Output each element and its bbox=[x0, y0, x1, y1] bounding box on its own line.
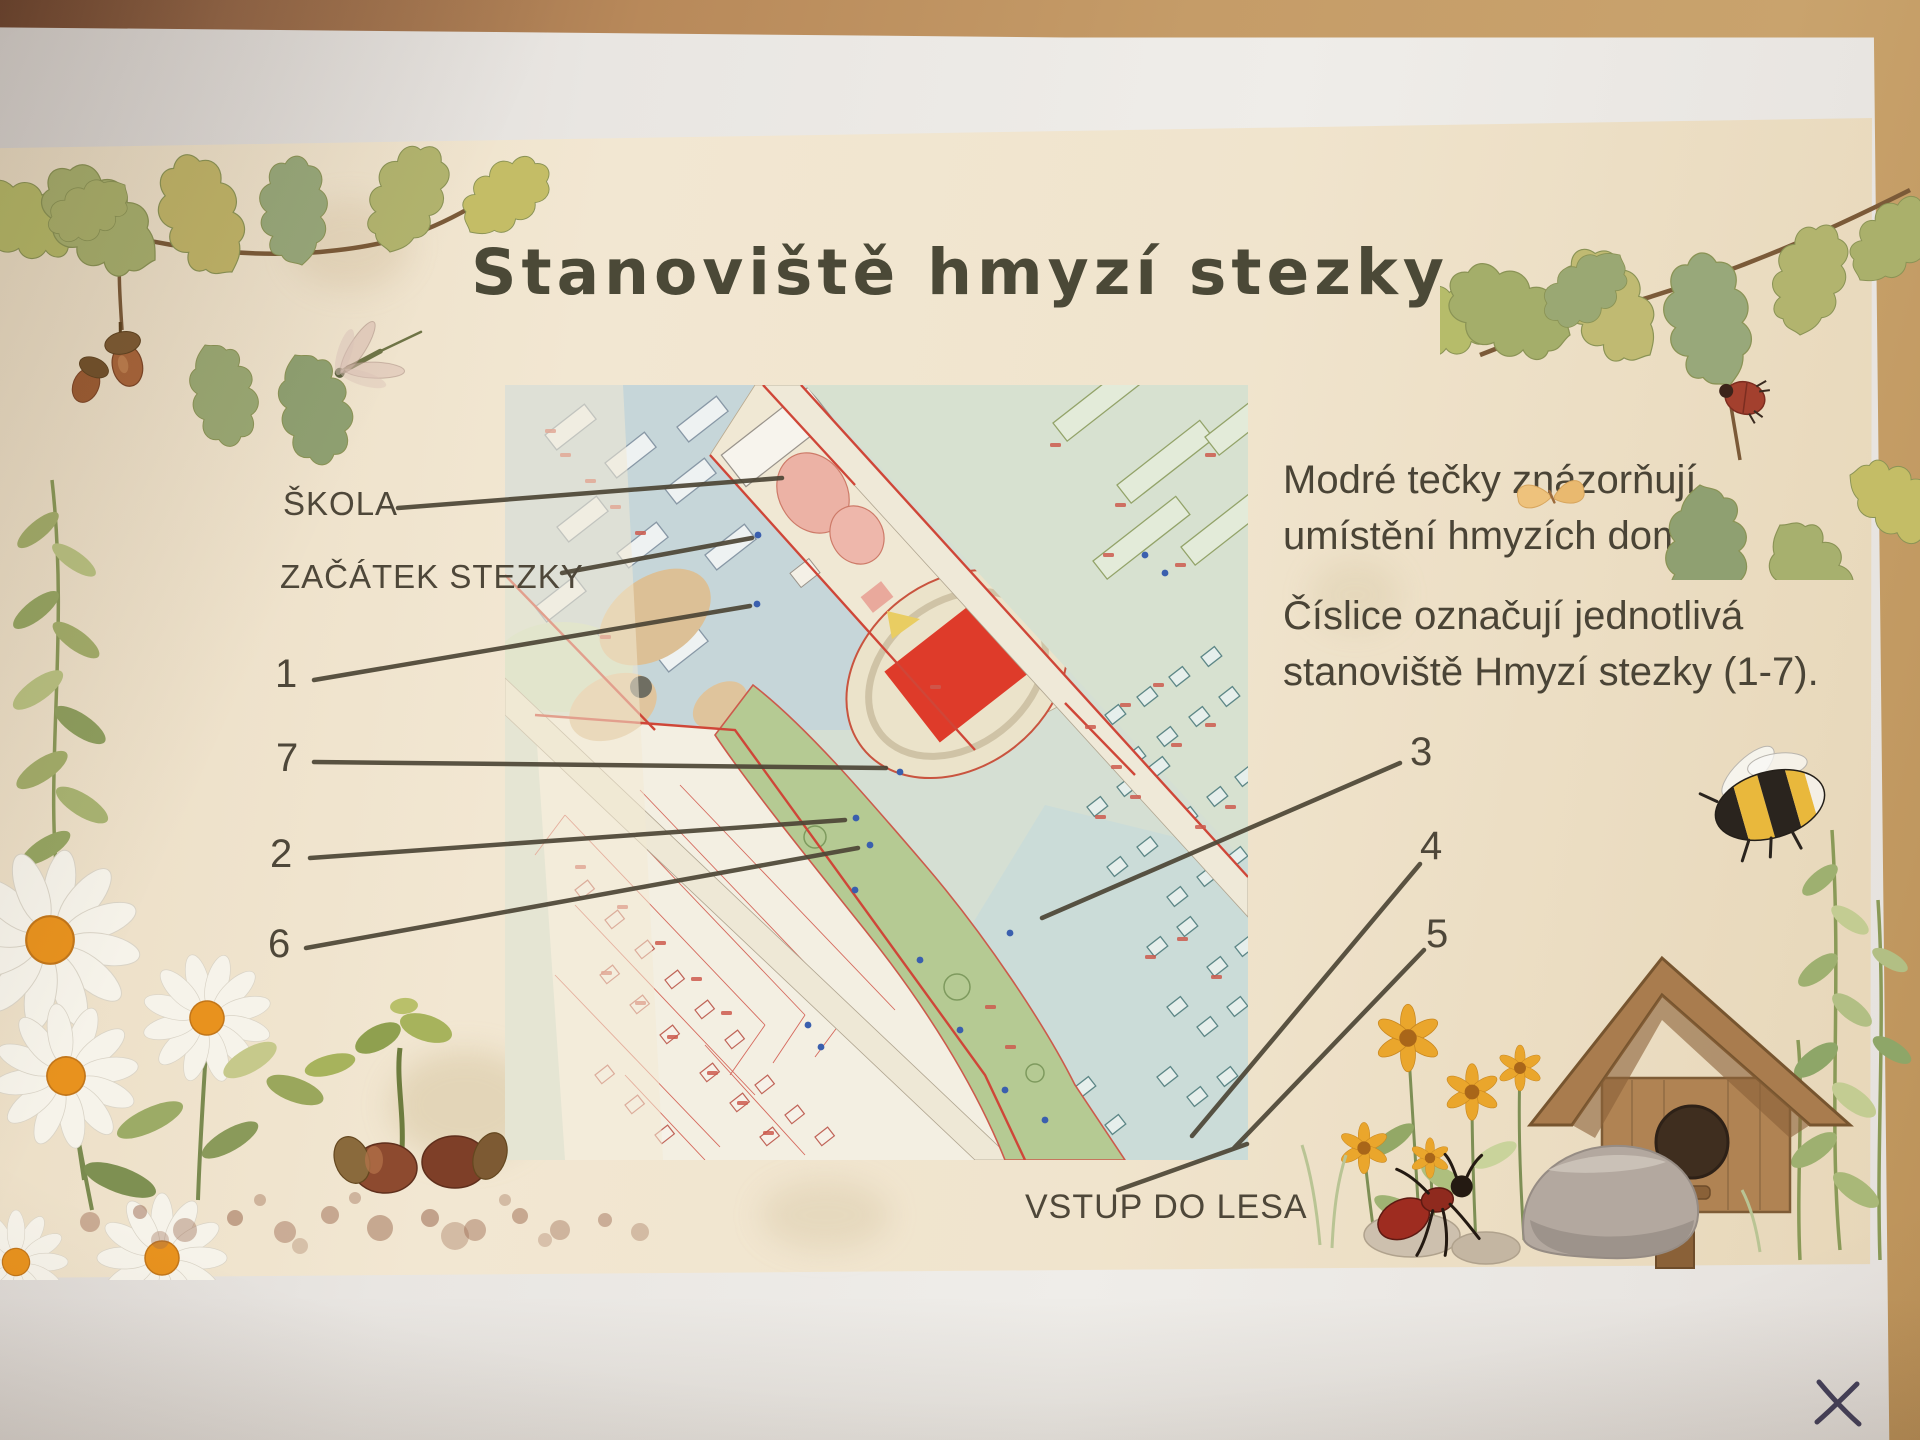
birdhouse-scene bbox=[1280, 580, 1920, 1280]
oak-branch-acorn-dragonfly-icon bbox=[0, 140, 700, 480]
leafy-stem-icon bbox=[7, 480, 113, 900]
daisies-acorn-scene bbox=[0, 440, 720, 1280]
rock-icon bbox=[1523, 1146, 1698, 1258]
butterfly-icon bbox=[1516, 476, 1586, 513]
daisy-icon bbox=[0, 835, 155, 1046]
daisy-icon bbox=[0, 1191, 87, 1280]
daisy-icon bbox=[128, 939, 286, 1097]
acorn-icon bbox=[65, 353, 112, 408]
label-vstup-do-lesa: VSTUP DO LESA bbox=[1025, 1188, 1308, 1227]
pen-x-mark bbox=[1805, 1372, 1875, 1434]
greenery-leaves bbox=[1786, 859, 1916, 1215]
photo-of-printed-poster: { "poster": { "title": "Stanoviště hmyzí… bbox=[0, 0, 1920, 1440]
oak-branch-beetle-butterfly-icon bbox=[1440, 150, 1920, 580]
acorn-sprout-icon bbox=[328, 997, 513, 1193]
acorn-icon bbox=[101, 319, 150, 390]
